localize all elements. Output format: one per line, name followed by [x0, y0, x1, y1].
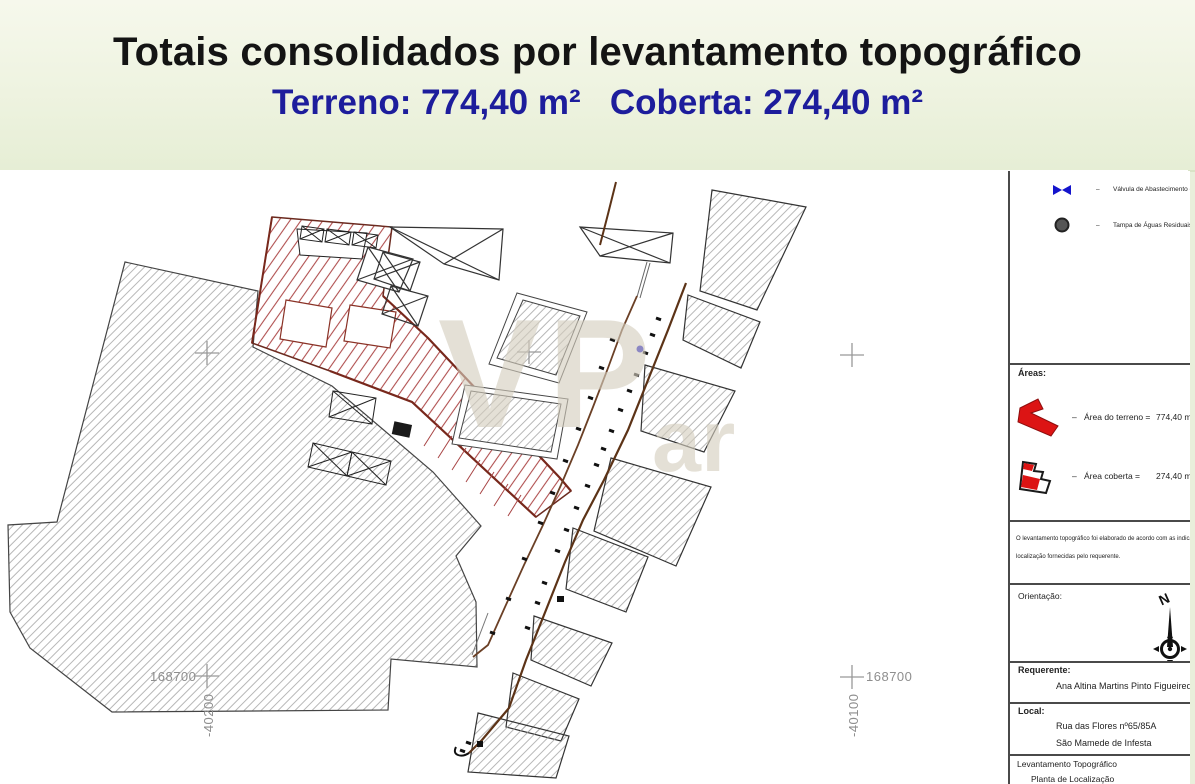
topographic-survey-page: { "banner": { "title": "Totais consolida…	[0, 0, 1195, 784]
separator	[1010, 702, 1190, 704]
valve-point	[637, 346, 644, 353]
areas-dash-1: –	[1072, 412, 1077, 422]
area-terreno-label: Área do terreno =	[1084, 412, 1150, 422]
separator	[1010, 754, 1190, 756]
separator	[1010, 363, 1190, 365]
compass-needle-icon	[1145, 603, 1190, 661]
valve-icon	[1052, 184, 1072, 196]
legend-dash-1: –	[1096, 186, 1100, 193]
doc-subtitle: Planta de Localização	[1031, 774, 1114, 784]
areas-dash-2: –	[1072, 471, 1077, 481]
north-compass: N	[1145, 591, 1190, 661]
manhole-icon	[1054, 217, 1070, 233]
legend-valve-label: Válvula de Abastecimento de Á	[1113, 186, 1190, 193]
legend-dash-2: –	[1096, 222, 1100, 229]
coord-label-northing-left: -40200	[201, 694, 216, 737]
note-line-1: O levantamento topográfico foi elaborado…	[1016, 536, 1190, 542]
local-address-line1: Rua das Flores nº65/85A	[1056, 721, 1156, 731]
title-block-panel: – Válvula de Abastecimento de Á – Tampa …	[1008, 171, 1190, 784]
area-coberta-value: 274,40 m2	[1156, 471, 1190, 481]
page-subtitle: Terreno: 774,40 m² Coberta: 274,40 m²	[0, 83, 1195, 123]
page-title: Totais consolidados por levantamento top…	[0, 30, 1195, 75]
manhole-mark	[557, 596, 564, 602]
area-terreno-value: 774,40 m2	[1156, 412, 1190, 422]
area-terreno-icon	[1016, 396, 1062, 438]
areas-heading: Áreas:	[1018, 368, 1046, 378]
title-banner: Totais consolidados por levantamento top…	[0, 0, 1195, 172]
local-address-line2: São Mamede de Infesta	[1056, 738, 1152, 748]
coord-label-easting-right: 168700	[866, 669, 912, 684]
area-coberta-label: Área coberta =	[1084, 471, 1140, 481]
orientation-label: Orientação:	[1018, 591, 1062, 601]
requerente-label: Requerente:	[1018, 665, 1071, 675]
coord-label-easting-left: 168700	[150, 669, 196, 684]
separator	[1010, 583, 1190, 585]
doc-title: Levantamento Topográfico	[1017, 759, 1117, 769]
courtyard-blocks	[452, 293, 587, 459]
coord-label-northing-right: -40100	[846, 694, 861, 737]
legend-manhole-label: Tampa de Águas Residuais	[1113, 222, 1190, 229]
separator	[1010, 520, 1190, 522]
manhole-mark-2	[477, 741, 483, 747]
local-label: Local:	[1018, 706, 1045, 716]
separator	[1010, 661, 1190, 663]
note-line-2: localização fornecidas pelo requerente.	[1016, 554, 1120, 560]
requerente-name: Ana Altina Martins Pinto Figueired	[1056, 681, 1190, 691]
area-coberta-icon	[1015, 459, 1057, 497]
